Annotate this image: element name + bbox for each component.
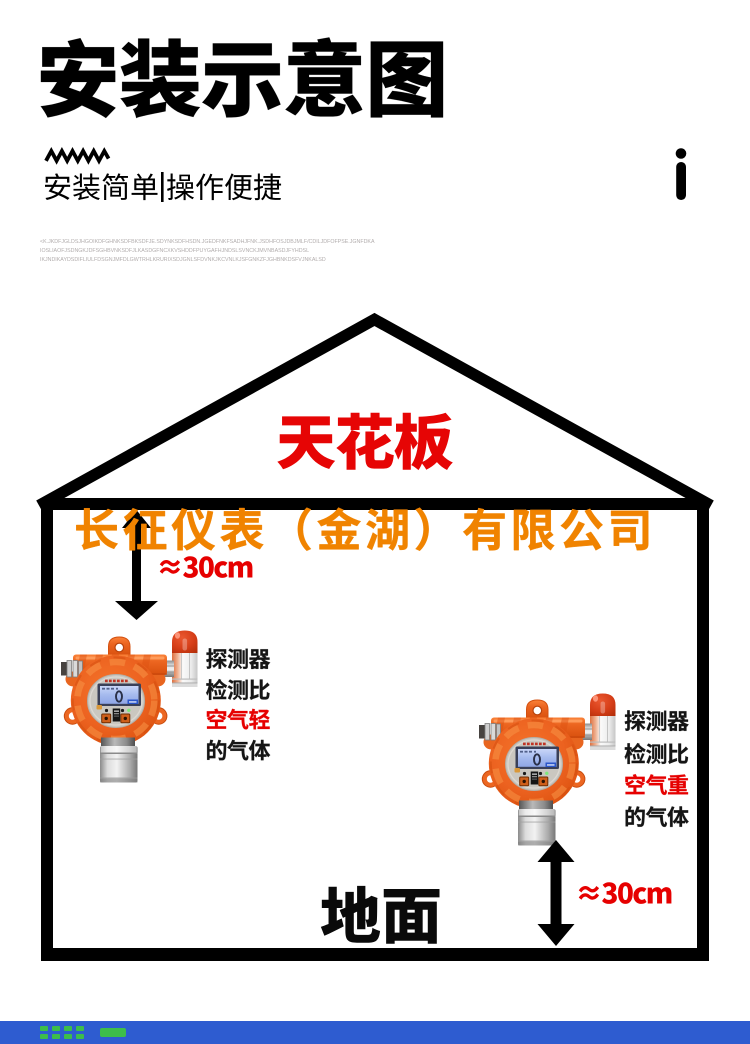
- svg-text:<K.JKDFJGLDSJHGOIKDFGHNKSDFBKS: <K.JKDFJGLDSJHGOIKDFGHNKSDFBKSDFJE.SDYNK…: [40, 239, 375, 245]
- svg-text:IOSLIAOFJSDNGKJDFSGHBVNKSDFJLK: IOSLIAOFJSDNGKJDFSGHBVNKSDFJLKASDGFNCXKV…: [40, 248, 309, 254]
- svg-text:IKJNDIKAYDSDIFLIULFDSGNJMFDLGW: IKJNDIKAYDSDIFLIULFDSGNJMFDLGWTRHLKRURIX…: [40, 257, 326, 263]
